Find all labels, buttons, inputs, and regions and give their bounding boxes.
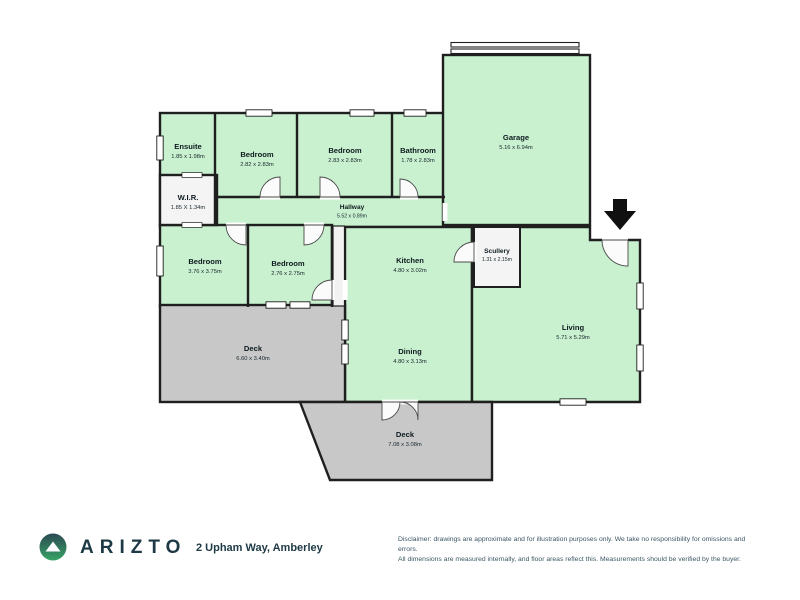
room-label-deck-west: Deck <box>244 344 263 353</box>
room-dims-wir: 1.85 X 1.34m <box>171 205 206 211</box>
room-dims-ensuite: 1.85 x 1.98m <box>171 154 205 160</box>
room-dims-bedroom-3: 3.76 x 3.75m <box>188 269 222 275</box>
room-label-bedroom-1: Bedroom <box>240 150 274 159</box>
room-dims-living: 5.71 x 5.29m <box>556 335 590 341</box>
room-dims-bedroom-2: 2.83 x 2.83m <box>328 158 362 164</box>
room-label-hallway: Hallway <box>340 204 365 211</box>
room-label-dining: Dining <box>398 347 422 356</box>
room-dims-hallway: 5.52 x 0.89m <box>337 214 367 220</box>
disclaimer-line-1: Disclaimer: drawings are approximate and… <box>398 535 760 555</box>
disclaimer-line-2: All dimensions are measured internally, … <box>398 555 760 565</box>
room-label-bedroom-3: Bedroom <box>188 257 222 266</box>
room-dims-garage: 5.16 x 6.94m <box>499 145 533 151</box>
room-label-bedroom-4: Bedroom <box>271 259 305 268</box>
disclaimer-text: Disclaimer: drawings are approximate and… <box>398 535 760 566</box>
room-label-wir: W.I.R. <box>178 193 199 202</box>
room-dims-deck-west: 6.60 x 3.40m <box>236 356 270 362</box>
room-dims-bedroom-1: 2.82 x 2.83m <box>240 162 274 168</box>
room-label-bathroom: Bathroom <box>400 146 436 155</box>
room-label-bedroom-2: Bedroom <box>328 146 362 155</box>
arizto-logo-icon <box>38 532 68 567</box>
footer: ARIZTO 2 Upham Way, Amberley Disclaimer:… <box>0 526 800 586</box>
entry-arrow-icon <box>604 199 636 230</box>
room-dims-scullery: 1.31 x 2.15m <box>482 257 512 263</box>
room-kitchen-dining <box>345 227 472 402</box>
room-label-kitchen: Kitchen <box>396 256 424 265</box>
floorplan-page: Ensuite 1.85 x 1.98m W.I.R. 1.85 X 1.34m… <box>0 0 800 600</box>
room-label-garage: Garage <box>503 133 529 142</box>
room-dims-deck-south: 7.08 x 3.08m <box>388 442 422 448</box>
room-label-scullery: Scullery <box>484 248 510 255</box>
property-address: 2 Upham Way, Amberley <box>196 542 323 554</box>
floorplan: Ensuite 1.85 x 1.98m W.I.R. 1.85 X 1.34m… <box>0 0 800 520</box>
room-label-living: Living <box>562 323 585 332</box>
deck-west <box>160 305 345 402</box>
room-dims-kitchen: 4.80 x 3.02m <box>393 268 427 274</box>
room-label-deck-south: Deck <box>396 430 415 439</box>
room-dims-bedroom-4: 2.76 x 2.75m <box>271 271 305 277</box>
garage-door <box>451 43 579 54</box>
room-dims-bathroom: 1.78 x 2.83m <box>401 158 435 164</box>
room-label-ensuite: Ensuite <box>174 142 201 151</box>
room-dims-dining: 4.80 x 3.13m <box>393 359 427 365</box>
brand-name: ARIZTO <box>80 537 186 559</box>
